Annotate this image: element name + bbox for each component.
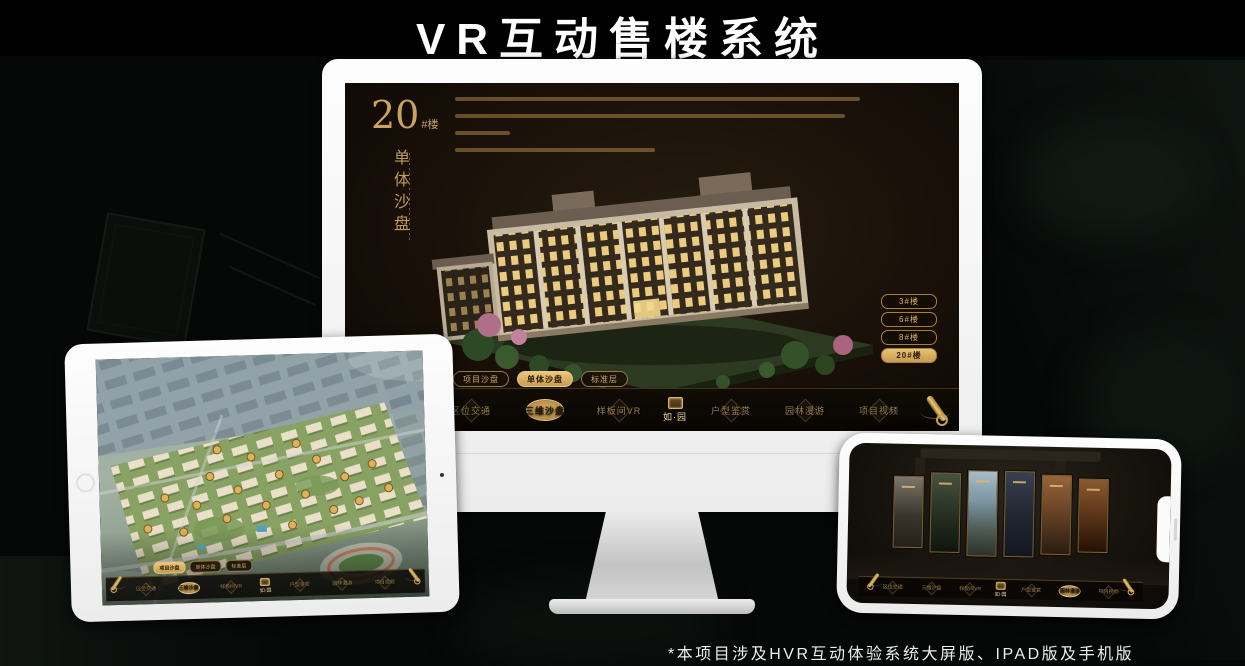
brand-logo: 如·园 — [259, 577, 271, 593]
menu-item-label: 户型鉴赏 — [1021, 586, 1041, 593]
brand-logo-text: 如·园 — [663, 410, 687, 423]
menu-item-label: 园林漫游 — [332, 580, 352, 588]
menu-item-label: 区位交通 — [451, 404, 491, 417]
building-render — [423, 149, 885, 395]
phone-notch — [1156, 496, 1170, 562]
tab-standard-floor[interactable]: 标准层 — [225, 559, 252, 572]
tablet-screen-shade — [96, 350, 430, 605]
footer-note: *本项目涉及HVR互动体验系统大屏版、IPAD版及手机版 — [668, 640, 1134, 664]
background-line — [219, 233, 320, 280]
menu-item-label: 三维沙盘 — [921, 584, 941, 591]
heading-caption-vertical: 单体沙盘 — [387, 149, 411, 237]
brand-seal-icon — [260, 577, 270, 585]
menu-item-label: 区位交通 — [883, 583, 903, 590]
scene-card-building-night[interactable] — [1003, 471, 1035, 558]
scroll-menu-toggle-icon[interactable] — [1120, 576, 1135, 596]
menu-item-model-room-vr[interactable]: 样板间VR — [589, 394, 649, 426]
phone-speaker-icon — [1174, 518, 1177, 540]
brand-logo: 如·园 — [995, 581, 1007, 597]
phone-device: 区位交通 三维沙盘 样板间VR 如·园 户型鉴赏 园林漫游 项目视频 — [836, 432, 1182, 619]
menu-item-label: 项目视频 — [859, 404, 899, 417]
brand-logo-text: 如·园 — [995, 590, 1007, 597]
brand-seal-icon — [996, 581, 1006, 589]
menu-item-label: 区位交通 — [136, 585, 156, 593]
menu-item-label: 户型鉴赏 — [711, 404, 751, 417]
brand-logo-text: 如·园 — [260, 586, 272, 593]
building-heading: 20#楼 — [371, 95, 438, 135]
menu-item-3d-sandbox[interactable]: 三维沙盘 — [515, 394, 575, 426]
floor-button-8[interactable]: 8#楼 — [881, 330, 937, 345]
menu-item-3d-sandbox[interactable]: 三维沙盘 — [917, 581, 945, 596]
tab-project-sandbox[interactable]: 项目沙盘 — [453, 371, 509, 387]
menu-item-garden-roam[interactable]: 园林漫游 — [775, 394, 835, 426]
scene-card-autumn-garden[interactable] — [1040, 475, 1072, 556]
floor-button-group: 3#楼 6#楼 8#楼 20#楼 — [881, 294, 937, 363]
tab-standard-floor[interactable]: 标准层 — [581, 371, 628, 387]
menu-item-label: 样板间VR — [597, 404, 642, 417]
menu-item-label: 三维沙盘 — [525, 404, 565, 417]
menu-item-unit-plans[interactable]: 户型鉴赏 — [1017, 583, 1045, 598]
scroll-menu-toggle-icon[interactable] — [866, 571, 881, 591]
menu-item-location-traffic[interactable]: 区位交通 — [132, 581, 160, 596]
tablet-device: 项目沙盘 单体沙盘 标准层 区位交通 三维沙盘 样板间VR 如·园 户型鉴赏 园… — [64, 334, 460, 623]
floor-button-6[interactable]: 6#楼 — [881, 312, 937, 327]
tablet-home-button[interactable] — [76, 473, 96, 493]
page: VR互动售楼系统 20#楼 单体沙盘 — [0, 0, 1245, 666]
monitor-stand-base — [549, 599, 755, 614]
scroll-menu-toggle-icon[interactable] — [406, 566, 421, 586]
menu-item-label: 样板间VR — [959, 585, 981, 592]
menu-item-label: 户型鉴赏 — [290, 581, 310, 589]
scroll-menu-toggle-icon[interactable] — [923, 392, 949, 428]
brand-logo: 如·园 — [663, 397, 687, 423]
scroll-menu-toggle-icon[interactable] — [109, 574, 124, 594]
menu-item-project-video[interactable]: 项目视频 — [849, 394, 909, 426]
menu-item-garden-roam[interactable]: 园林漫游 — [328, 576, 356, 591]
tablet-camera-icon — [440, 473, 444, 477]
floor-button-20[interactable]: 20#楼 — [881, 348, 937, 363]
menu-item-label: 项目视频 — [375, 578, 395, 586]
scene-card-gallery — [891, 444, 1110, 584]
building-number-suffix: #楼 — [421, 119, 438, 131]
menu-item-3d-sandbox[interactable]: 三维沙盘 — [174, 580, 202, 595]
background-plaque — [86, 212, 205, 348]
menu-item-model-room-vr[interactable]: 样板间VR — [217, 579, 245, 594]
caption-divider-line — [409, 153, 410, 241]
tablet-screen: 项目沙盘 单体沙盘 标准层 区位交通 三维沙盘 样板间VR 如·园 户型鉴赏 园… — [96, 350, 430, 605]
scene-card-interior-warm[interactable] — [1077, 478, 1109, 553]
menu-item-model-room-vr[interactable]: 样板间VR — [956, 581, 984, 596]
building-number: 20 — [371, 93, 419, 137]
sandbox-tabs: 项目沙盘 单体沙盘 标准层 — [453, 371, 628, 387]
scene-card-interior[interactable] — [892, 476, 924, 549]
menu-item-label: 园林漫游 — [1060, 587, 1080, 594]
brand-seal-icon — [668, 397, 683, 409]
tab-single-building[interactable]: 单体沙盘 — [189, 560, 221, 573]
menu-item-label: 样板间VR — [220, 583, 242, 591]
menu-item-unit-plans[interactable]: 户型鉴赏 — [286, 577, 314, 592]
menu-item-label: 项目视频 — [1099, 588, 1119, 595]
menu-item-garden-roam[interactable]: 园林漫游 — [1056, 583, 1084, 598]
monitor-stand — [585, 509, 719, 603]
menu-item-unit-plans[interactable]: 户型鉴赏 — [701, 394, 761, 426]
menu-item-label: 园林漫游 — [785, 404, 825, 417]
scene-card-building-day[interactable] — [966, 470, 998, 557]
page-title: VR互动售楼系统 — [0, 3, 1245, 67]
scene-card-courtyard[interactable] — [929, 472, 961, 553]
floor-button-3[interactable]: 3#楼 — [881, 294, 937, 309]
menu-item-location-traffic[interactable]: 区位交通 — [879, 580, 907, 595]
phone-screen: 区位交通 三维沙盘 样板间VR 如·园 户型鉴赏 园林漫游 项目视频 — [846, 443, 1171, 610]
tab-project-sandbox[interactable]: 项目沙盘 — [153, 561, 185, 574]
tab-single-building[interactable]: 单体沙盘 — [517, 371, 573, 387]
menu-item-project-video[interactable]: 项目视频 — [371, 575, 399, 590]
menu-item-label: 三维沙盘 — [178, 584, 198, 592]
